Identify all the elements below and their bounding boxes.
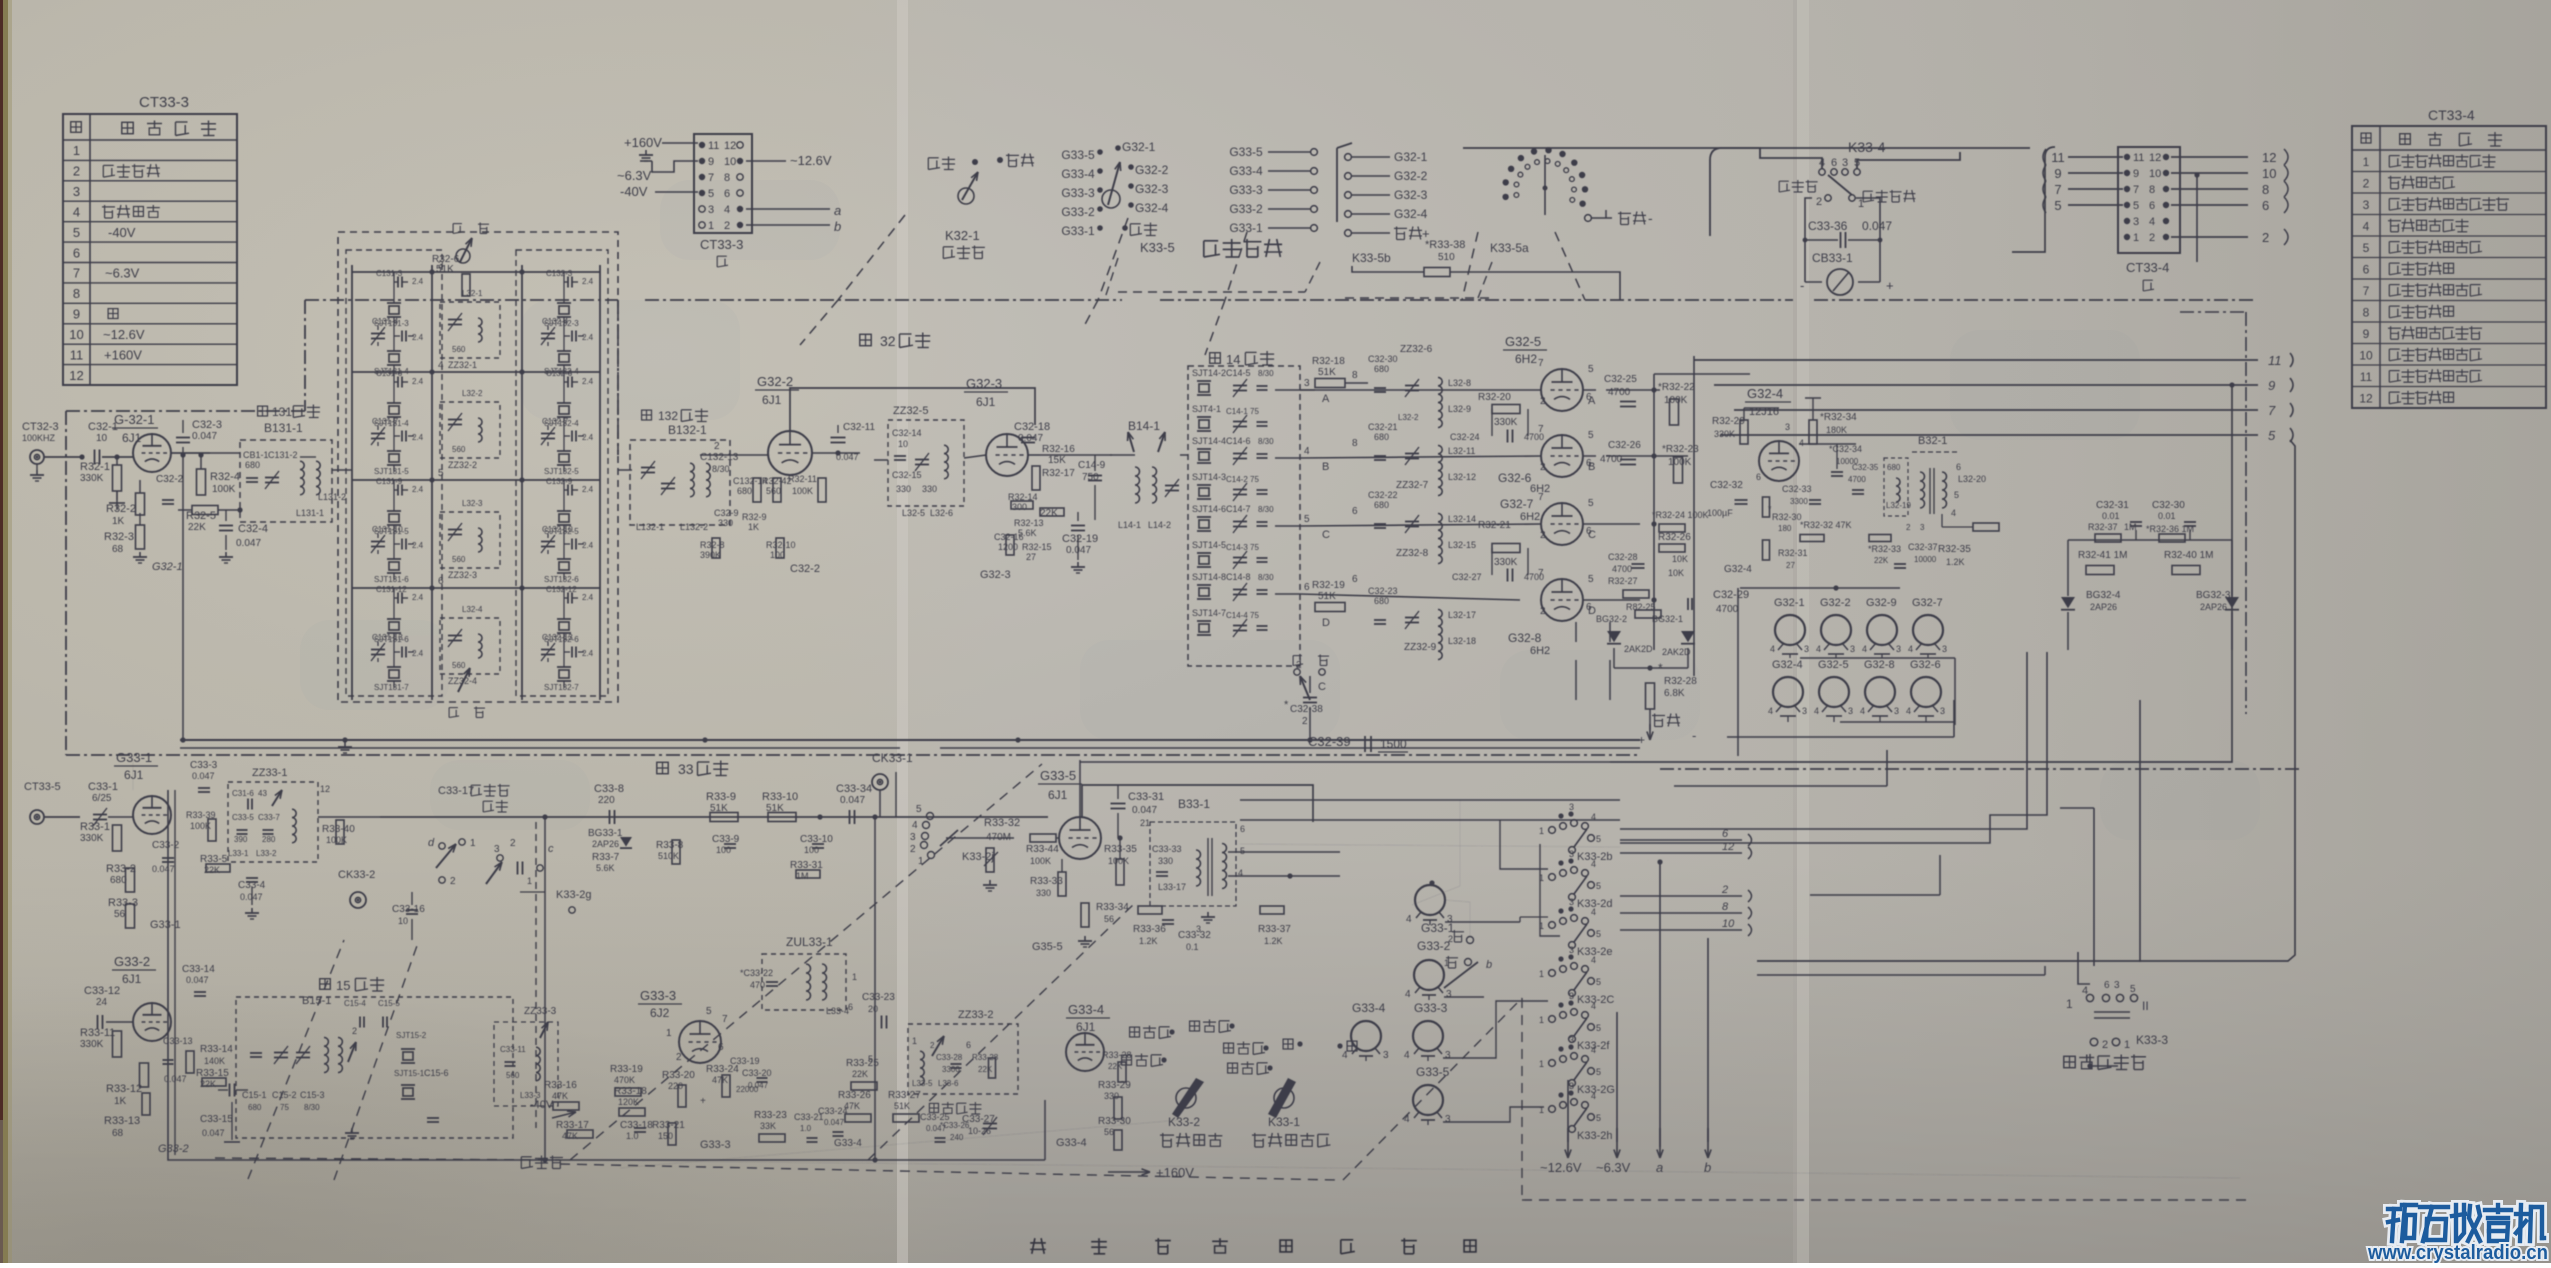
svg-text:1: 1 [2124,1039,2130,1051]
svg-text:L33-4: L33-4 [826,1006,849,1016]
svg-text:0.01: 0.01 [2102,511,2120,521]
svg-text:*C33-22: *C33-22 [740,968,773,978]
svg-text:6H2: 6H2 [1515,352,1537,366]
svg-text:ZZ32-2: ZZ32-2 [448,460,477,470]
svg-text:C131-4: C131-4 [372,317,399,326]
svg-text:R32-27: R32-27 [1608,576,1638,586]
svg-text:4: 4 [1799,438,1804,448]
svg-text:12: 12 [2262,150,2276,165]
svg-text:100K: 100K [1664,395,1688,406]
svg-text:G32-4: G32-4 [1772,659,1803,671]
svg-text:6J1: 6J1 [762,393,782,407]
svg-text:A: A [1588,395,1596,407]
svg-text:G32-4: G32-4 [1394,207,1428,221]
svg-text:5: 5 [916,804,922,815]
svg-text:2: 2 [1721,884,1728,896]
svg-text:R33-30: R33-30 [1098,1116,1131,1127]
svg-text:75: 75 [280,1103,289,1112]
svg-text:G-32-1: G-32-1 [114,412,154,427]
svg-text:*C32-34: *C32-34 [1829,444,1862,454]
svg-text:5: 5 [706,1006,712,1017]
svg-text:3: 3 [1850,644,1855,654]
svg-text:6: 6 [1831,157,1837,169]
svg-text:L32-18: L32-18 [1448,636,1476,646]
svg-text:56: 56 [1104,914,1114,924]
svg-text:R33-18: R33-18 [614,1086,647,1097]
svg-text:G32-3: G32-3 [1394,188,1428,202]
svg-text:100: 100 [804,845,819,855]
svg-text:R33-36: R33-36 [1133,924,1166,935]
svg-text:4: 4 [1591,859,1596,869]
svg-text:1: 1 [2133,232,2139,244]
svg-text:~6.3V: ~6.3V [617,168,652,183]
svg-text:G32-1: G32-1 [1122,140,1156,154]
svg-text:330: 330 [718,518,733,528]
svg-text:C33-12: C33-12 [84,985,120,997]
svg-text:1: 1 [666,1028,672,1039]
svg-text:4700: 4700 [1524,572,1544,582]
svg-text:G33-5: G33-5 [1229,145,1263,159]
svg-text:47K: 47K [552,1091,568,1101]
svg-text:C15-2: C15-2 [272,1090,297,1100]
svg-text:10-26: 10-26 [968,1126,991,1136]
svg-text:6J2: 6J2 [650,1006,670,1020]
svg-text:6J1: 6J1 [1076,1020,1096,1034]
svg-text:II: II [2142,999,2149,1013]
svg-text:*R32-33: *R32-33 [1868,544,1901,554]
svg-text:2AP26: 2AP26 [2200,602,2227,612]
svg-text:*: * [1284,699,1289,711]
svg-text:9: 9 [2054,166,2061,181]
svg-text:1: 1 [1539,1059,1544,1069]
svg-text:12: 12 [1722,841,1734,853]
svg-text:R33-2: R33-2 [106,863,136,875]
svg-text:C132-7: C132-7 [542,417,569,426]
svg-text:G33-2: G33-2 [158,1143,189,1155]
svg-text:9: 9 [73,307,80,322]
svg-text:C32-15: C32-15 [892,470,922,480]
svg-text:0.047: 0.047 [236,538,261,549]
svg-text:7: 7 [708,172,714,184]
svg-text:3: 3 [1445,1050,1451,1061]
svg-text:2: 2 [73,164,80,179]
svg-text:2: 2 [1540,530,1546,541]
svg-text:330: 330 [1104,1091,1119,1101]
svg-text:0.01: 0.01 [2158,511,2176,521]
svg-text:G33-4: G33-4 [1229,164,1263,178]
svg-text:L33-17: L33-17 [1158,882,1186,892]
svg-text:R32-11: R32-11 [788,474,817,484]
svg-text:680: 680 [248,1103,262,1112]
svg-text:6: 6 [724,188,730,200]
svg-text:6: 6 [1956,462,1961,472]
svg-text:R32-30: R32-30 [1772,512,1802,522]
svg-text:C32-2: C32-2 [156,474,184,485]
svg-text:3: 3 [1304,378,1310,389]
svg-text:~6.3V: ~6.3V [105,266,140,281]
svg-text:K33-5b: K33-5b [1352,251,1391,265]
svg-text:2.4: 2.4 [412,541,424,550]
svg-text:680: 680 [1887,463,1901,472]
svg-text:SJT14-7: SJT14-7 [1192,608,1226,618]
svg-text:L32-19: L32-19 [1886,501,1911,510]
svg-text:4: 4 [1906,706,1911,716]
svg-text:27: 27 [1786,561,1795,570]
svg-text:G33-4: G33-4 [1056,1137,1087,1149]
svg-text:3: 3 [1920,523,1925,532]
svg-text:R32-35: R32-35 [1938,544,1971,555]
svg-text:R32-26: R32-26 [1658,532,1691,543]
svg-text:4: 4 [912,820,918,831]
svg-text:8: 8 [1352,438,1358,449]
svg-text:B131-1: B131-1 [264,421,303,435]
svg-text:2.4: 2.4 [412,593,424,602]
svg-text:K32-1: K32-1 [945,228,980,243]
svg-text:3: 3 [438,260,444,271]
svg-text:10: 10 [69,327,83,342]
svg-text:K33-2g: K33-2g [556,889,591,901]
svg-text:11: 11 [708,140,719,152]
svg-text:8: 8 [73,286,80,301]
svg-text:3: 3 [1896,644,1901,654]
svg-text:2: 2 [1540,396,1546,407]
svg-text:21: 21 [1140,818,1150,828]
svg-text:C132-4: C132-4 [542,317,569,326]
svg-text:4: 4 [1908,644,1913,654]
svg-text:L14-2: L14-2 [1148,520,1171,530]
svg-text:47K: 47K [562,1131,578,1141]
svg-text:0.047: 0.047 [202,1128,225,1138]
svg-text:2AK2D: 2AK2D [1662,647,1691,657]
svg-text:G32-8: G32-8 [1508,631,1542,645]
svg-text:CT33-5: CT33-5 [24,781,61,793]
svg-text:CT33-4: CT33-4 [2428,107,2475,123]
svg-text:C32-2: C32-2 [790,563,820,575]
svg-text:BG32-2: BG32-2 [1596,614,1627,624]
svg-text:3: 3 [1569,1035,1574,1045]
svg-text:1K: 1K [112,516,125,527]
svg-text:2: 2 [930,1041,935,1050]
svg-text:4: 4 [1862,644,1867,654]
svg-text:*R32-24 100K: *R32-24 100K [1652,510,1709,520]
svg-text:C131-13: C131-13 [372,633,403,642]
svg-text:3: 3 [1848,706,1853,716]
svg-text:3: 3 [1842,157,1848,169]
svg-text:K33-1: K33-1 [1268,1115,1300,1129]
svg-text:-40V: -40V [108,225,136,240]
svg-text:G32-1: G32-1 [1394,150,1428,164]
svg-text:R32-2: R32-2 [106,503,136,515]
svg-text:C32-14: C32-14 [892,428,922,438]
svg-text:100K: 100K [1108,856,1129,866]
svg-text:0.1: 0.1 [1186,942,1199,952]
svg-text:C15-3: C15-3 [300,1090,325,1100]
svg-text:K33-5: K33-5 [1140,240,1175,255]
svg-text:3: 3 [708,204,714,216]
svg-text:0.047: 0.047 [192,431,217,442]
svg-text:22K: 22K [978,1065,993,1074]
svg-text:L131-2: L131-2 [318,492,346,502]
svg-text:C32-30: C32-30 [2152,500,2185,511]
svg-text:~12.6V: ~12.6V [103,327,145,342]
svg-text:C: C [1588,529,1596,541]
svg-text:14: 14 [1226,352,1240,367]
svg-text:6: 6 [1352,506,1358,517]
svg-text:2.4: 2.4 [412,377,424,386]
svg-text:C14-7: C14-7 [1226,504,1251,514]
svg-text:22K: 22K [1108,1062,1123,1071]
svg-text:L32-17: L32-17 [1448,610,1476,620]
svg-text:4700: 4700 [1848,475,1866,484]
svg-text:C32-33: C32-33 [1782,484,1812,494]
svg-text:10: 10 [2262,166,2276,181]
svg-text:3: 3 [1447,914,1453,925]
svg-text:2.4: 2.4 [412,649,424,658]
svg-text:C32-19: C32-19 [1062,533,1098,545]
svg-text:ZZ33-3: ZZ33-3 [524,1006,557,1017]
svg-text:G32-5: G32-5 [1818,659,1849,671]
svg-text:5: 5 [1596,1067,1601,1077]
svg-text:2.4: 2.4 [412,433,424,442]
svg-text:ZZ32-7: ZZ32-7 [1396,480,1429,491]
svg-text:8/30: 8/30 [1258,505,1274,514]
svg-text:L14-1: L14-1 [1118,520,1141,530]
svg-text:SJT131-5: SJT131-5 [374,467,409,476]
svg-text:1: 1 [1444,958,1449,968]
svg-text:2.4: 2.4 [582,485,594,494]
svg-text:C33-34: C33-34 [836,783,872,795]
svg-text:C32-3: C32-3 [192,419,222,431]
svg-text:1.2K: 1.2K [1139,936,1158,946]
svg-text:C14-2 75: C14-2 75 [1226,475,1259,484]
svg-text:11: 11 [2133,152,2144,164]
svg-text:G32-4: G32-4 [1724,564,1752,575]
svg-text:L132-2: L132-2 [680,522,708,532]
svg-text:3: 3 [494,844,500,855]
svg-text:2: 2 [1296,660,1302,671]
svg-text:22K: 22K [852,1069,868,1079]
svg-text:1: 1 [527,876,532,886]
svg-text:560: 560 [452,445,466,454]
svg-text:510K: 510K [658,851,679,861]
svg-text:C32-11: C32-11 [843,422,875,433]
svg-text:8/30: 8/30 [1258,437,1274,446]
svg-text:5: 5 [1596,977,1601,987]
svg-text:2AP26: 2AP26 [2090,602,2117,612]
svg-text:1K: 1K [748,522,759,532]
svg-text:SJT14-4: SJT14-4 [1192,436,1226,446]
svg-text:2.4: 2.4 [582,593,594,602]
svg-text:SJT14-8: SJT14-8 [1192,572,1226,582]
svg-text:680: 680 [1374,596,1389,606]
svg-text:3: 3 [1383,1050,1389,1061]
svg-text:R32-20: R32-20 [1478,392,1511,403]
svg-text:56: 56 [1104,1127,1114,1137]
svg-text:G33-3: G33-3 [700,1139,731,1151]
svg-text:11: 11 [2268,353,2282,368]
svg-text:4700: 4700 [1716,604,1739,615]
svg-text:2.4: 2.4 [582,649,594,658]
svg-text:10: 10 [1722,918,1735,930]
svg-text:7: 7 [722,1014,728,1025]
svg-text:SJT14-5: SJT14-5 [1192,540,1226,550]
svg-text:3300: 3300 [942,1065,960,1074]
svg-text:G33-3: G33-3 [1414,1001,1448,1015]
svg-text:2: 2 [1302,716,1308,727]
svg-text:1: 1 [73,143,80,158]
svg-text:680: 680 [110,875,127,886]
svg-text:2: 2 [1448,934,1453,944]
svg-text:680: 680 [737,486,752,496]
svg-text:6H2: 6H2 [1530,645,1550,657]
svg-text:22K: 22K [1874,556,1889,565]
svg-text:R32-37: R32-37 [2088,522,2118,532]
svg-text:6.8K: 6.8K [1664,688,1685,699]
svg-text:G33-5: G33-5 [1040,768,1076,783]
svg-text:6: 6 [1304,582,1310,593]
svg-text:680: 680 [245,460,260,470]
svg-text:1: 1 [1539,1015,1544,1025]
svg-text:2: 2 [352,1026,357,1036]
svg-text:2: 2 [714,441,720,452]
svg-text:8: 8 [2149,184,2155,196]
svg-text:C33-32: C33-32 [1178,930,1211,941]
svg-text:1: 1 [852,972,857,982]
svg-text:R32-28: R32-28 [1664,676,1697,687]
svg-text:10: 10 [96,433,108,444]
svg-text:CT33-3: CT33-3 [700,237,743,252]
svg-text:L132-1: L132-1 [636,522,664,532]
svg-text:4700: 4700 [1612,564,1632,574]
svg-text:2.4: 2.4 [412,277,424,286]
svg-text:C33-36: C33-36 [1808,219,1848,233]
svg-text:4: 4 [1304,446,1310,457]
svg-text:11: 11 [2360,370,2373,384]
svg-text:2.4: 2.4 [582,377,594,386]
svg-text:2: 2 [2363,176,2370,190]
svg-text:C32-35: C32-35 [1852,463,1879,472]
svg-text:11: 11 [70,347,84,362]
svg-text:ZZ32-8: ZZ32-8 [1396,548,1429,559]
svg-text:C32-37: C32-37 [1908,542,1938,552]
svg-text:2AP26: 2AP26 [592,839,619,849]
svg-text:330K: 330K [1494,557,1518,568]
svg-text:K33-3: K33-3 [2136,1033,2168,1047]
svg-text:R32-21: R32-21 [1478,520,1511,531]
svg-text:CT32-3: CT32-3 [22,421,59,433]
svg-text:B33-1: B33-1 [1178,797,1210,811]
svg-text:*R32-34: *R32-34 [1820,412,1857,423]
svg-text:CB33-1: CB33-1 [1812,251,1853,265]
svg-text:100: 100 [716,845,731,855]
svg-text:R32-40 1M: R32-40 1M [2164,550,2213,561]
svg-text:0.047: 0.047 [1066,545,1091,556]
svg-text:G32-4: G32-4 [1135,201,1169,215]
svg-text:6J1: 6J1 [122,431,142,445]
svg-text:G33-2: G33-2 [1417,939,1451,953]
svg-text:4: 4 [1768,706,1773,716]
svg-text:240: 240 [950,1133,964,1142]
svg-text:3: 3 [1569,1081,1574,1091]
svg-text:9: 9 [708,156,714,168]
svg-text:8/30: 8/30 [712,464,730,474]
svg-text:C32-24: C32-24 [1450,432,1480,442]
svg-text:68: 68 [112,1128,124,1139]
svg-text:C14-5: C14-5 [1226,368,1251,378]
svg-text:7: 7 [2268,403,2276,418]
svg-text:132: 132 [658,409,678,423]
svg-text:180K: 180K [1826,425,1847,435]
svg-text:0.047: 0.047 [240,892,263,902]
svg-text:6: 6 [2262,198,2269,213]
svg-text:3: 3 [1802,706,1807,716]
svg-text:6: 6 [73,245,80,260]
svg-text:L33-6: L33-6 [938,1079,959,1088]
svg-text:a: a [1656,1160,1663,1175]
svg-text:CT33-3: CT33-3 [139,94,189,111]
svg-text:C33-17: C33-17 [438,785,474,797]
svg-text:L32-2: L32-2 [462,389,483,398]
svg-text:C: C [1322,529,1330,541]
svg-text:C32-18: C32-18 [1014,421,1050,433]
svg-text:680: 680 [1374,432,1389,442]
svg-text:10: 10 [898,439,908,449]
svg-text:4: 4 [1860,706,1865,716]
svg-text:5: 5 [438,468,444,479]
svg-text:2: 2 [1540,606,1546,617]
svg-text:C33-19: C33-19 [730,1056,760,1066]
svg-text:R32-18: R32-18 [1312,356,1345,367]
svg-text:K33-2: K33-2 [1168,1115,1200,1129]
svg-text:BG32-4: BG32-4 [2086,590,2121,601]
svg-text:D: D [1322,617,1330,629]
svg-text:1: 1 [918,856,924,867]
svg-text:150: 150 [658,1131,673,1141]
svg-text:C33-28: C33-28 [936,1053,963,1062]
svg-text:7: 7 [1538,358,1544,369]
svg-text:8: 8 [1722,901,1729,913]
svg-text:12: 12 [2149,152,2161,164]
svg-text:b: b [1486,959,1492,971]
svg-text:5: 5 [73,225,80,240]
svg-text:R33-23: R33-23 [754,1110,787,1121]
svg-text:510: 510 [1438,252,1455,263]
svg-text:R32-4: R32-4 [210,471,240,483]
svg-text:G32-8: G32-8 [1864,659,1895,671]
svg-text:G33-1: G33-1 [116,750,152,765]
svg-text:+160V: +160V [624,135,662,150]
svg-text:R33-19: R33-19 [610,1064,643,1075]
svg-text:6/25: 6/25 [92,793,112,804]
svg-text:680: 680 [1374,364,1389,374]
svg-text:5: 5 [1596,834,1601,844]
svg-text:51K: 51K [1318,591,1336,602]
svg-text:SJT131-7: SJT131-7 [374,683,409,692]
svg-text:R33-13: R33-13 [104,1115,140,1127]
svg-text:51K: 51K [1318,367,1336,378]
svg-text:24: 24 [96,997,108,1008]
svg-text:SJT15-2: SJT15-2 [396,1031,427,1040]
svg-text:G32-1: G32-1 [1774,597,1805,609]
svg-text:a: a [834,203,841,218]
svg-text:100K: 100K [1030,856,1051,866]
svg-text:SJT132-5: SJT132-5 [544,467,579,476]
svg-text:2AK2D: 2AK2D [1624,644,1653,654]
svg-text:L32-8: L32-8 [1448,378,1471,388]
svg-text:ZZ32-6: ZZ32-6 [1400,344,1433,355]
svg-text:G32-2: G32-2 [757,374,793,389]
svg-text:2.4: 2.4 [582,277,594,286]
